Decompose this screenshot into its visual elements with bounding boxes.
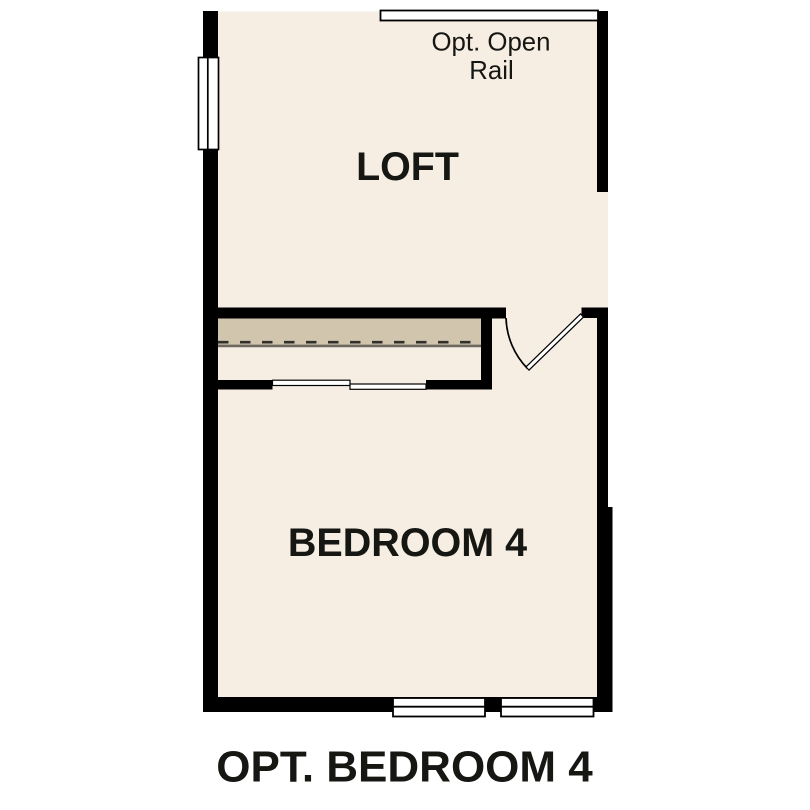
svg-text:Opt. Open: Opt. Open (431, 29, 550, 57)
svg-text:LOFT: LOFT (356, 145, 459, 189)
svg-text:Rail: Rail (469, 57, 513, 85)
svg-text:BEDROOM 4: BEDROOM 4 (288, 521, 527, 565)
svg-text:OPT. BEDROOM 4: OPT. BEDROOM 4 (216, 743, 593, 792)
